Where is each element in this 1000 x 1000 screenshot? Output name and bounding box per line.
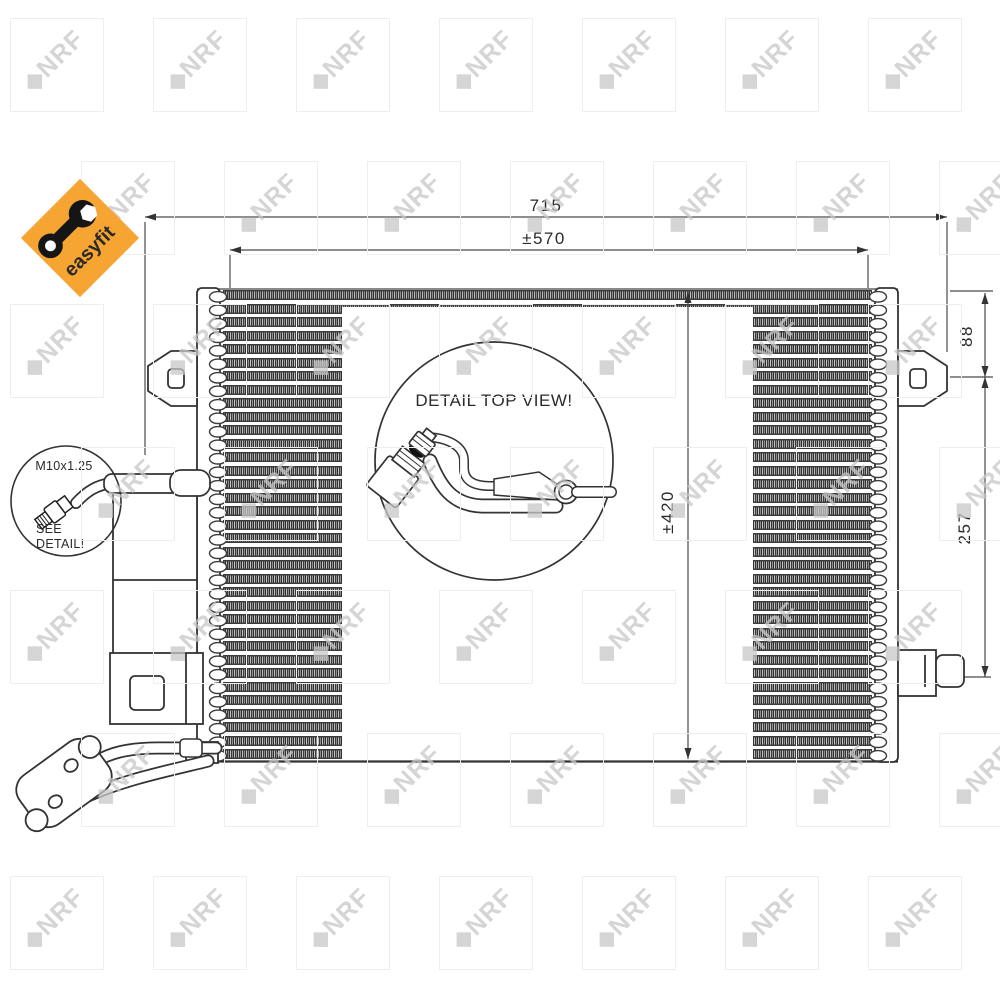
dim-label-bracket-offset: 88: [957, 325, 976, 347]
serpentine-loops-right: [870, 292, 887, 761]
right-mounting-bracket: [898, 351, 947, 406]
right-connector-block: [898, 650, 964, 696]
condenser-drawing-canvas: M10x1.25 SEE DETAIL! DETAIL: [0, 0, 1000, 1000]
dim-label-connector-offset: 257: [955, 512, 974, 545]
easyfit-diamond: [21, 179, 139, 297]
dim-label-width-total: 715: [530, 196, 563, 215]
see-detail-label-line1: SEE: [36, 522, 62, 536]
condenser-technical-drawing: M10x1.25 SEE DETAIL! DETAIL: [0, 0, 1000, 1000]
see-detail-label-line2: DETAIL!: [36, 537, 84, 551]
serpentine-loops-left: [210, 292, 227, 761]
left-mounting-bracket: [148, 351, 197, 406]
dim-label-core-height: ±420: [658, 490, 677, 534]
dim-label-width-ports: ±570: [522, 229, 566, 248]
thread-size-label: M10x1.25: [35, 459, 92, 473]
easyfit-badge: easyfit: [16, 174, 144, 307]
detail-top-view-label: DETAIL TOP VIEW!: [415, 391, 572, 410]
inlet-flange: [2, 728, 125, 840]
